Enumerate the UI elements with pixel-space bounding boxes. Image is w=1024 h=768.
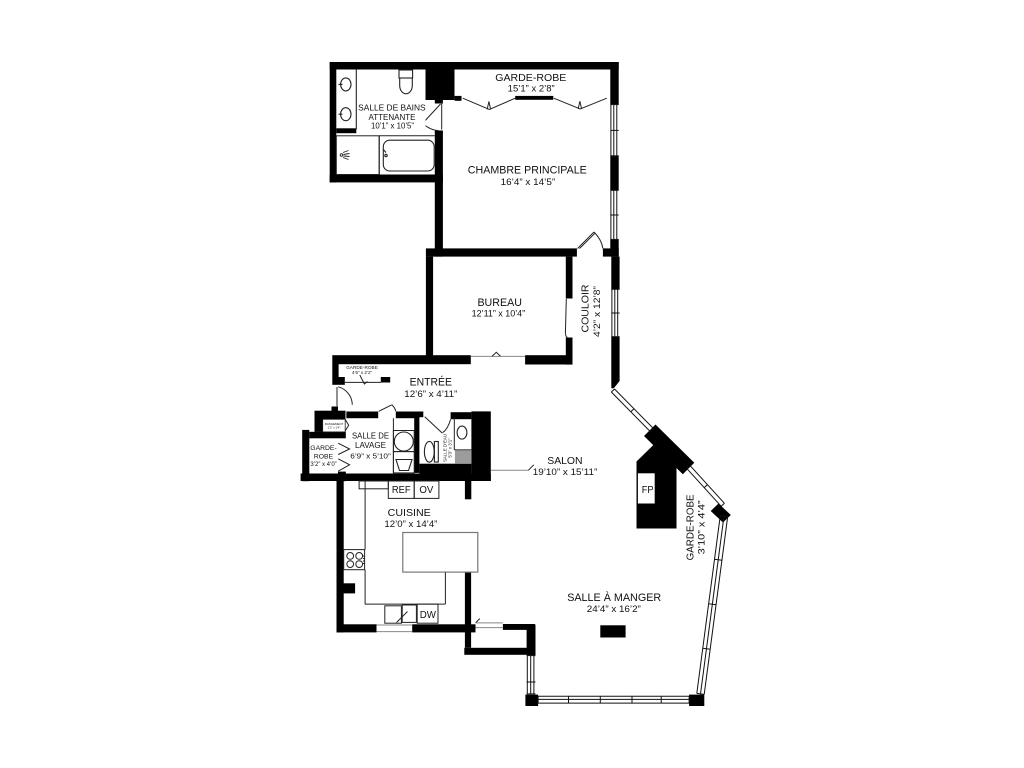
svg-text:19’10” x 15’11”: 19’10” x 15’11” bbox=[533, 467, 598, 477]
svg-text:DW: DW bbox=[420, 610, 437, 621]
svg-text:GARDE-: GARDE- bbox=[310, 445, 336, 452]
svg-text:FP: FP bbox=[642, 485, 654, 496]
svg-text:SALLE DE: SALLE DE bbox=[352, 432, 389, 441]
svg-text:REF: REF bbox=[392, 485, 411, 496]
svg-text:24’4” x 16’2”: 24’4” x 16’2” bbox=[587, 604, 641, 614]
svg-text:12’0” x 14’4”: 12’0” x 14’4” bbox=[384, 519, 437, 529]
svg-text:12’6” x 4’11”: 12’6” x 4’11” bbox=[404, 389, 457, 399]
svg-text:16’4” x 14’5”: 16’4” x 14’5” bbox=[501, 177, 556, 187]
svg-text:SALON: SALON bbox=[547, 456, 582, 467]
svg-text:1’2” x 1’4”: 1’2” x 1’4” bbox=[328, 426, 341, 430]
svg-text:10’1” x 10’5”: 10’1” x 10’5” bbox=[371, 121, 414, 130]
svg-text:OV: OV bbox=[419, 485, 433, 496]
svg-text:CHAMBRE PRINCIPALE: CHAMBRE PRINCIPALE bbox=[468, 164, 587, 176]
svg-text:6’9” x 5’10”: 6’9” x 5’10” bbox=[350, 452, 391, 461]
svg-text:CUISINE: CUISINE bbox=[388, 508, 431, 519]
svg-text:4’2” x 12’8”: 4’2” x 12’8” bbox=[592, 286, 602, 337]
svg-text:ROBE: ROBE bbox=[314, 454, 334, 461]
svg-text:LAVAGE: LAVAGE bbox=[355, 441, 386, 450]
svg-text:5’3” x 3’1”: 5’3” x 3’1” bbox=[447, 438, 452, 458]
svg-text:ATTENANTE: ATTENANTE bbox=[369, 112, 416, 122]
svg-text:3’10” x 4’4”: 3’10” x 4’4” bbox=[697, 500, 707, 554]
svg-text:COULOIR: COULOIR bbox=[581, 285, 592, 333]
svg-text:BUREAU: BUREAU bbox=[477, 297, 522, 309]
svg-text:12’11” x 10’4”: 12’11” x 10’4” bbox=[472, 309, 526, 319]
svg-text:3’2” x 4’0”: 3’2” x 4’0” bbox=[310, 462, 336, 468]
svg-text:SALLE À MANGER: SALLE À MANGER bbox=[567, 591, 661, 604]
svg-text:15’1” x 2’8”: 15’1” x 2’8” bbox=[508, 84, 555, 94]
svg-text:GARDE-ROBE: GARDE-ROBE bbox=[495, 73, 566, 84]
svg-text:GARDE-ROBE: GARDE-ROBE bbox=[685, 494, 696, 560]
svg-text:ENTRÉE: ENTRÉE bbox=[410, 376, 452, 389]
svg-text:4’6” x 2’2”: 4’6” x 2’2” bbox=[352, 370, 373, 375]
